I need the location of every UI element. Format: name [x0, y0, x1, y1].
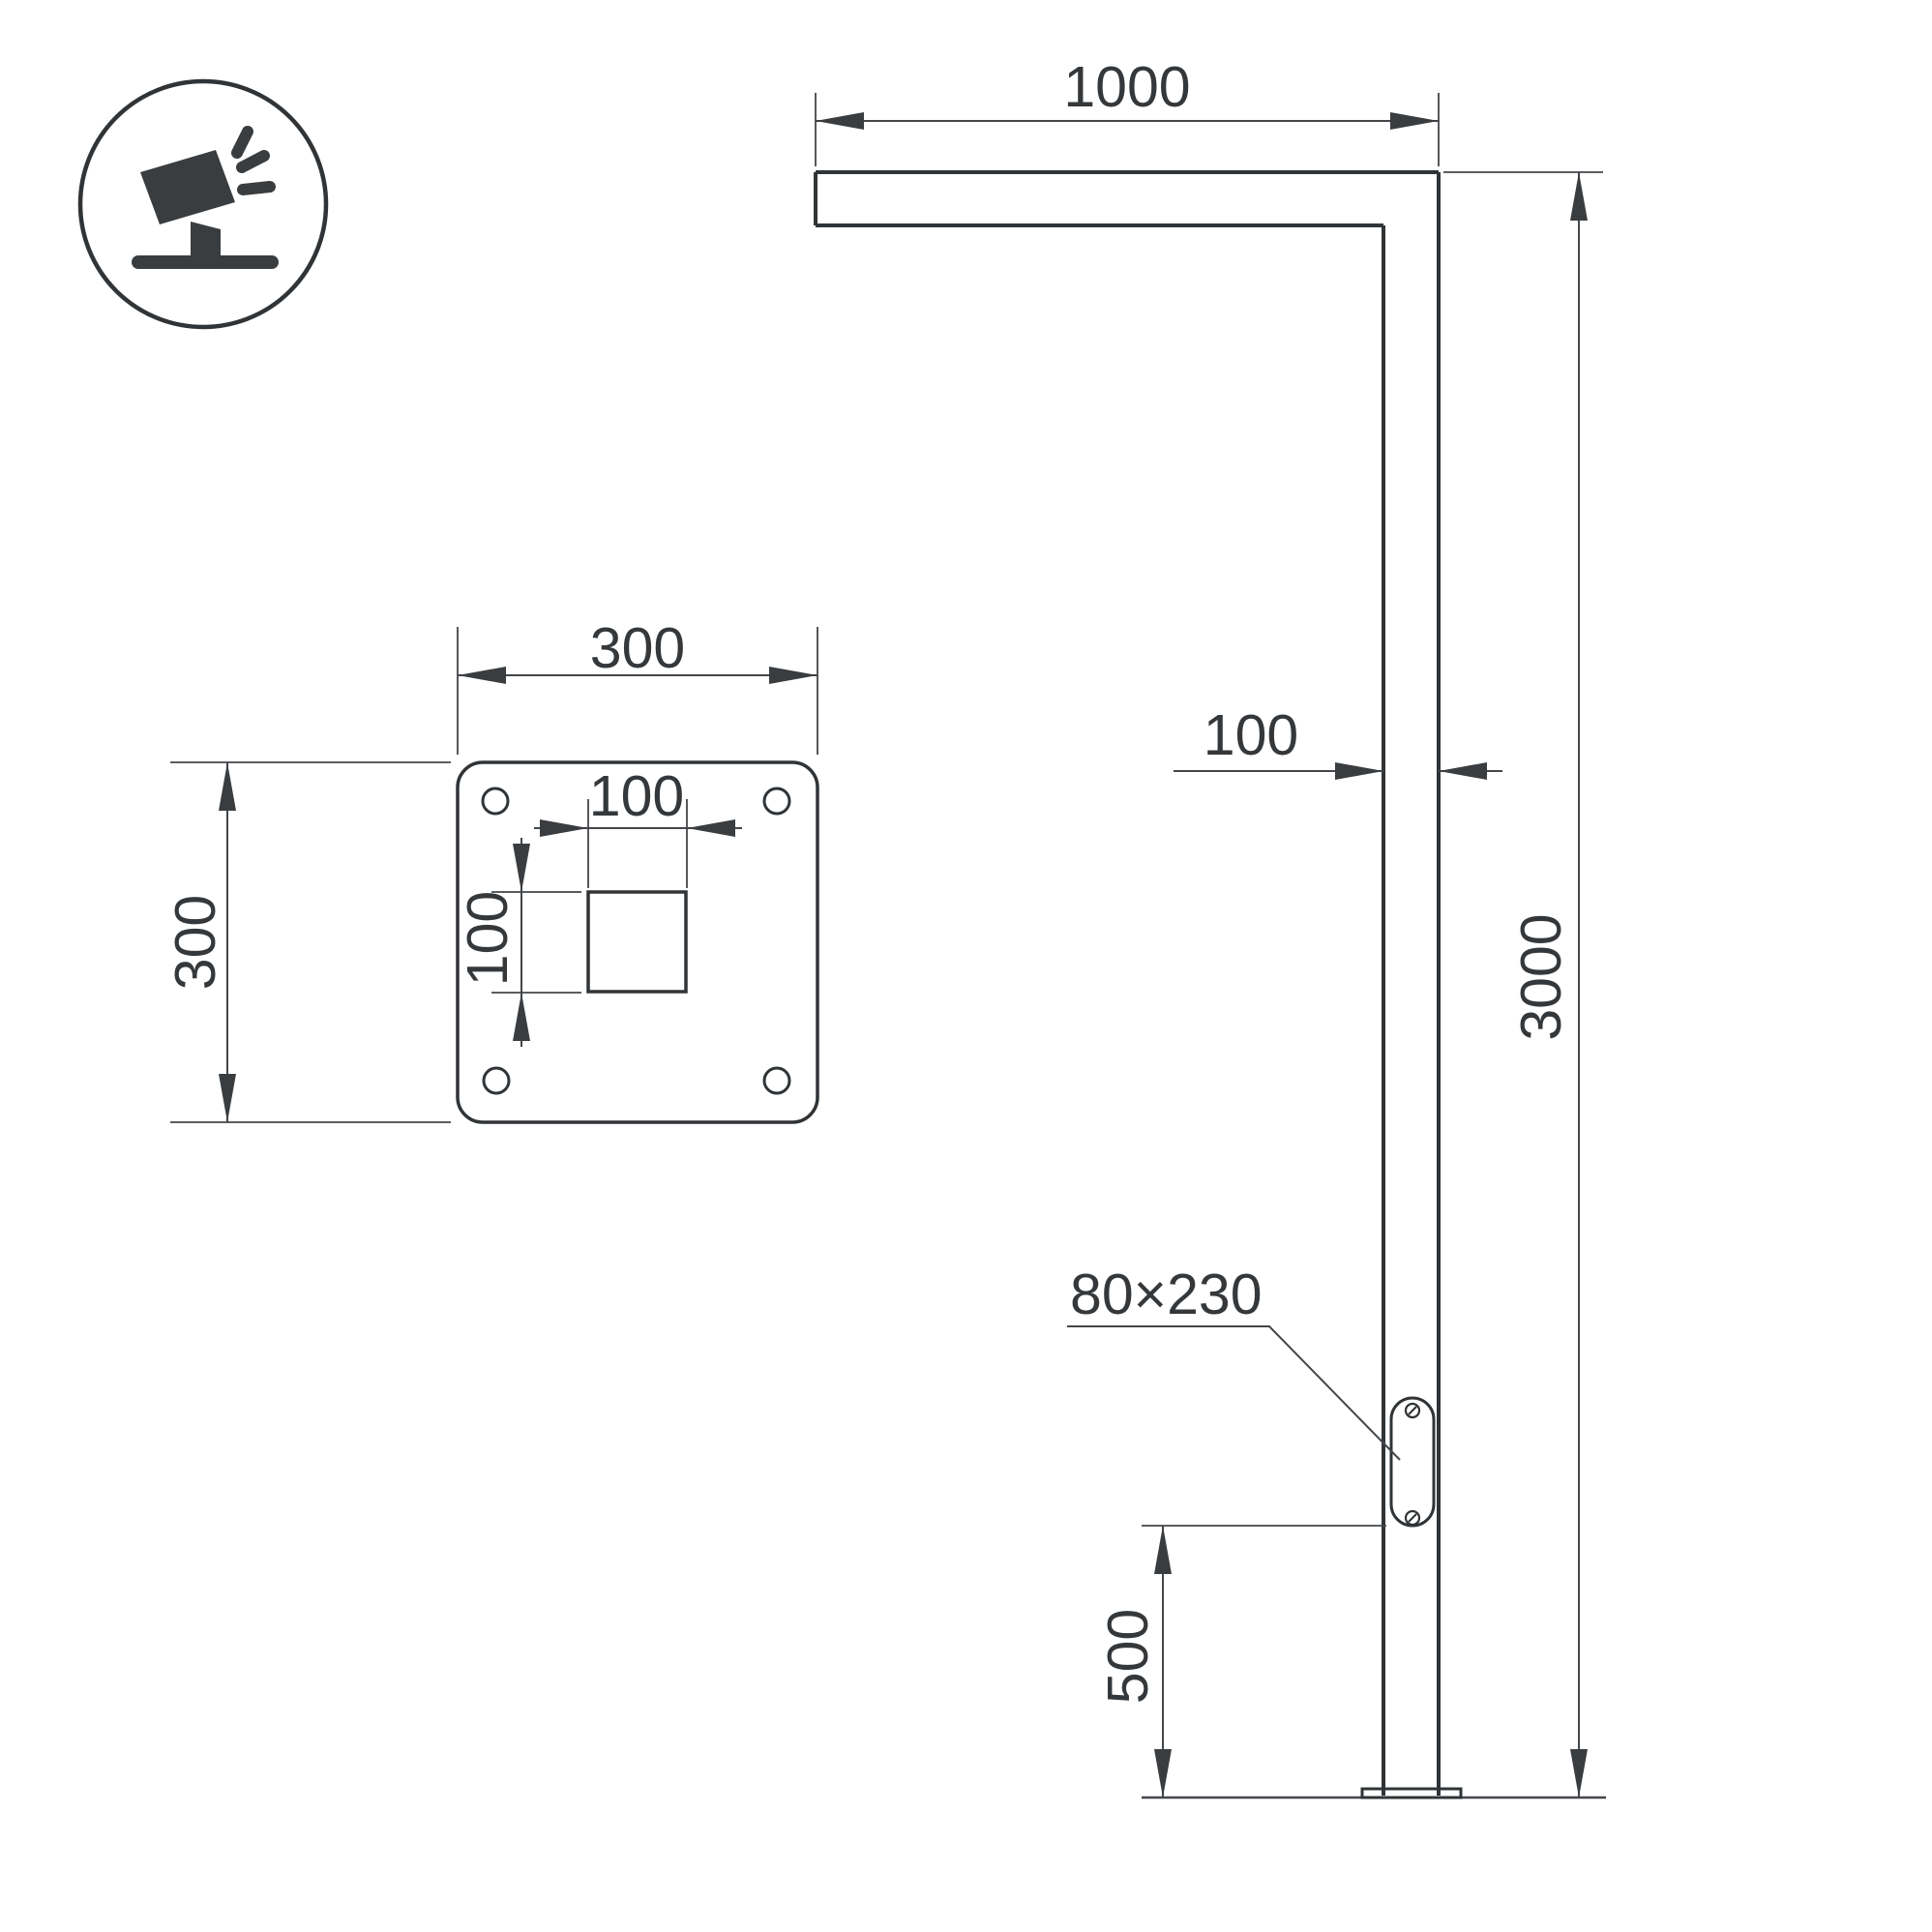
dimension-plate-width: 300 [458, 616, 817, 755]
pole-width-label: 100 [1204, 703, 1298, 767]
dimension-pole-width: 100 [1174, 703, 1502, 780]
dimension-pole-height: 3000 [1443, 172, 1603, 1798]
dimension-cutout-width: 100 [534, 764, 742, 888]
access-panel-label: 80×230 [1070, 1263, 1263, 1326]
cutout-height-label: 100 [456, 891, 520, 986]
arm-length-label: 1000 [1063, 55, 1190, 119]
panel-offset-label: 500 [1096, 1609, 1160, 1704]
pole-side-view: 1000 100 3000 500 80×230 [816, 55, 1606, 1798]
square-cutout [588, 892, 686, 992]
floodlight-badge [80, 81, 326, 327]
plate-height-label: 300 [163, 895, 227, 990]
bolt-hole-bottom-right [764, 1068, 789, 1093]
dimension-arm-length: 1000 [816, 55, 1439, 166]
pole-height-label: 3000 [1509, 913, 1573, 1040]
tilted-floodlight-icon [132, 132, 279, 269]
dimension-plate-height: 300 [163, 762, 451, 1122]
bolt-hole-bottom-left [484, 1068, 509, 1093]
pole-technical-drawing: 300 300 100 100 [0, 0, 1932, 1932]
base-flange [1362, 1789, 1461, 1798]
pole-outline [816, 172, 1439, 1796]
bolt-hole-top-left [483, 788, 508, 814]
cutout-width-label: 100 [589, 764, 684, 828]
access-panel [1391, 1398, 1434, 1526]
floodlight-base-bar [132, 255, 279, 269]
base-plate-plan-view: 300 300 100 100 [163, 616, 817, 1122]
leader-line [1067, 1326, 1400, 1460]
drawing-canvas: 300 300 100 100 [0, 0, 1932, 1932]
bolt-hole-top-right [764, 788, 789, 814]
dimension-cutout-height: 100 [456, 838, 581, 1047]
floodlight-head [140, 150, 235, 224]
dimension-panel-offset: 500 [1096, 1526, 1386, 1798]
plate-width-label: 300 [590, 616, 685, 680]
light-rays-icon [237, 132, 270, 190]
access-panel-callout: 80×230 [1067, 1263, 1400, 1460]
